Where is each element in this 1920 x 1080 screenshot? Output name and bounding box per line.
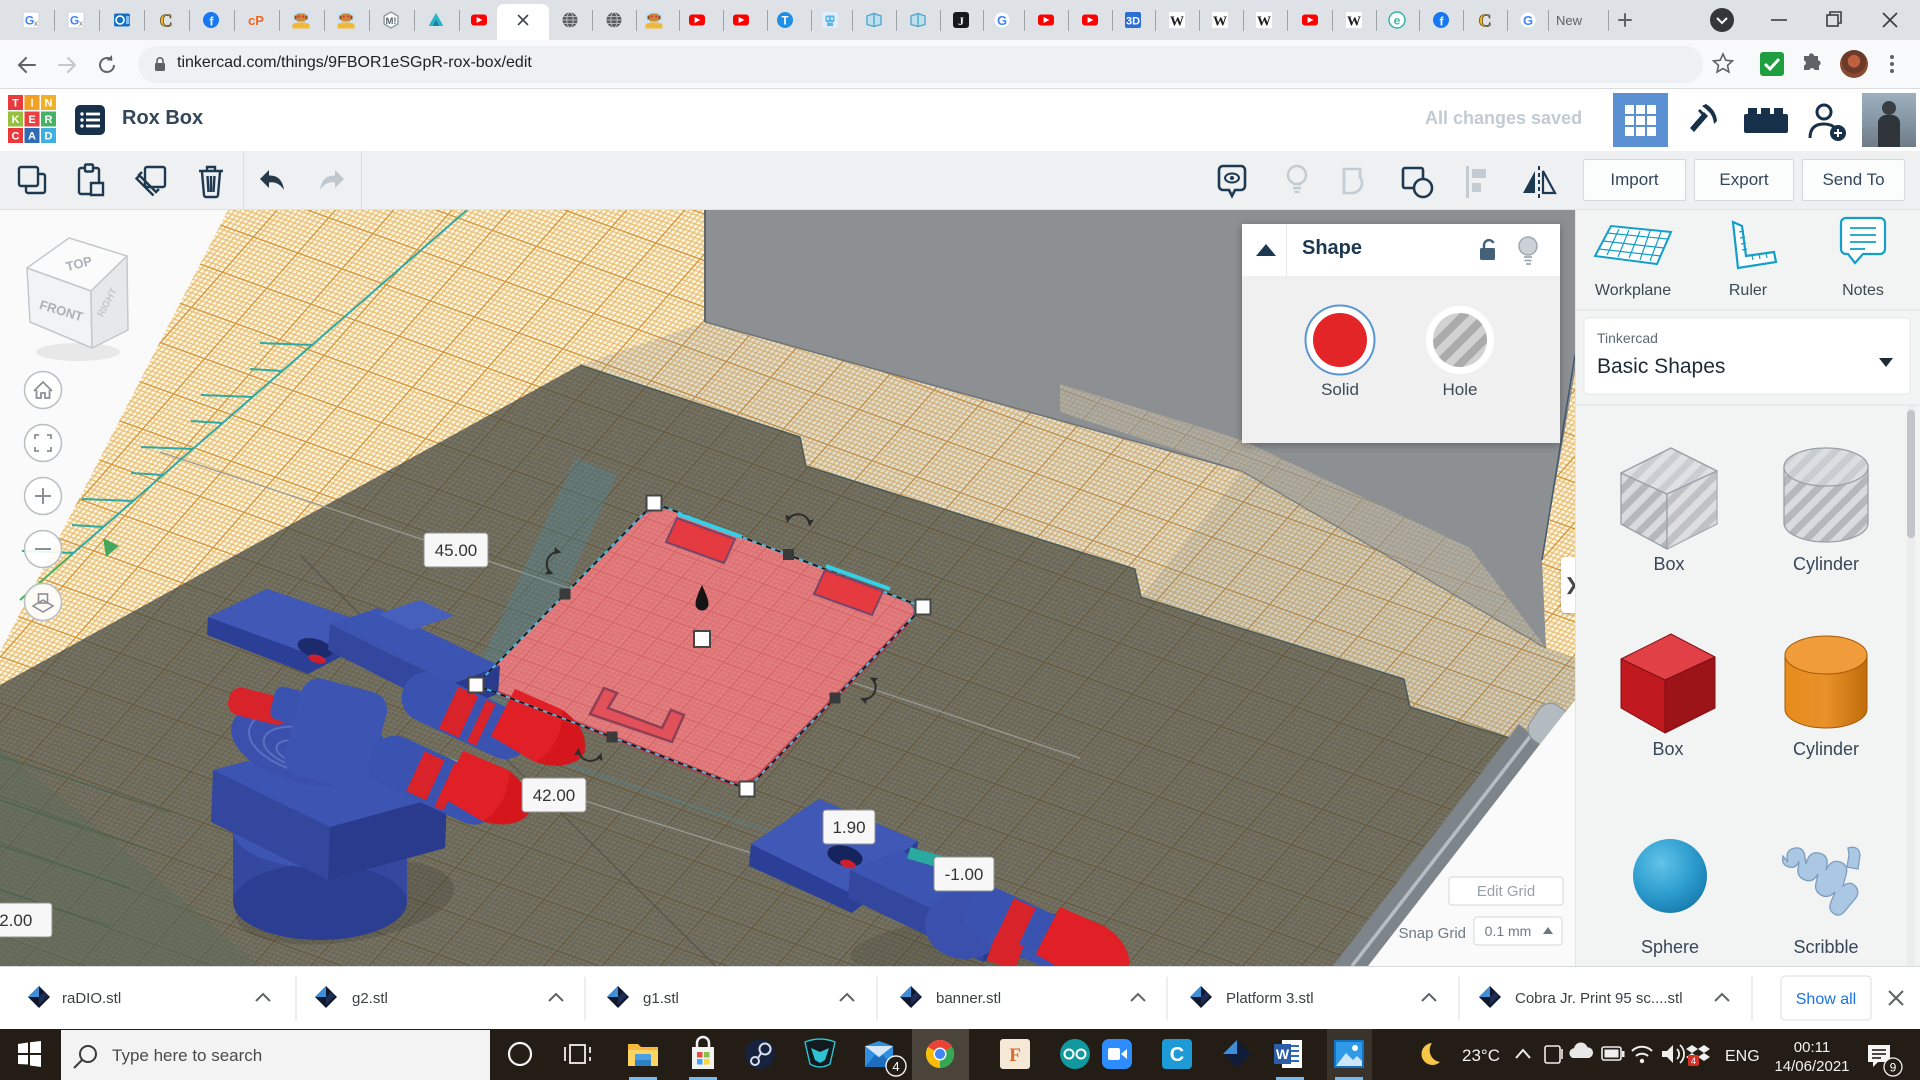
svg-text:0.1 mm: 0.1 mm	[1485, 923, 1532, 939]
svg-text:1.90: 1.90	[832, 818, 865, 837]
svg-text:42.00: 42.00	[533, 786, 576, 805]
svg-text:Box: Box	[1653, 554, 1684, 574]
svg-text:M!: M!	[385, 16, 396, 27]
svg-text:Scribble: Scribble	[1793, 937, 1858, 957]
svg-text:I: I	[30, 98, 33, 110]
svg-text:Snap Grid: Snap Grid	[1398, 925, 1466, 942]
svg-text:R: R	[45, 114, 53, 126]
svg-text:45.00: 45.00	[435, 541, 478, 560]
svg-text:ENG: ENG	[1725, 1048, 1760, 1065]
svg-text:W: W	[1276, 1046, 1290, 1062]
svg-text:Cobra Jr. Print 95 sc....stl: Cobra Jr. Print 95 sc....stl	[1515, 990, 1683, 1007]
svg-text:raDIO.stl: raDIO.stl	[62, 990, 121, 1007]
svg-text:New: New	[1556, 13, 1583, 28]
svg-text:Basic Shapes: Basic Shapes	[1597, 355, 1725, 378]
svg-text:52.00: 52.00	[0, 911, 32, 930]
svg-text:e: e	[1394, 14, 1401, 28]
svg-text:A: A	[28, 131, 36, 143]
svg-text:4: 4	[892, 1059, 899, 1074]
svg-text:Ruler: Ruler	[1729, 282, 1768, 299]
svg-text:E: E	[28, 114, 35, 126]
svg-text:4: 4	[1691, 1056, 1696, 1066]
svg-text:Workplane: Workplane	[1595, 282, 1671, 299]
svg-text:T: T	[781, 16, 788, 28]
svg-text:Notes: Notes	[1842, 282, 1884, 299]
svg-text:Cylinder: Cylinder	[1793, 554, 1859, 574]
svg-text:Type here to search: Type here to search	[112, 1046, 262, 1065]
svg-text:g2.stl: g2.stl	[352, 990, 388, 1007]
svg-text:cP: cP	[248, 13, 264, 28]
svg-text:23°C: 23°C	[1462, 1046, 1500, 1065]
svg-text:00:11: 00:11	[1794, 1039, 1830, 1056]
svg-text:-1.00: -1.00	[945, 865, 984, 884]
svg-text:14/06/2021: 14/06/2021	[1774, 1058, 1849, 1075]
svg-text:J: J	[958, 14, 964, 28]
svg-text:Edit Grid: Edit Grid	[1477, 883, 1535, 900]
svg-text:Cylinder: Cylinder	[1793, 739, 1859, 759]
svg-text:C: C	[1170, 1044, 1184, 1066]
svg-text:Platform 3.stl: Platform 3.stl	[1226, 990, 1314, 1007]
svg-text:D: D	[45, 131, 53, 143]
svg-text:Sphere: Sphere	[1641, 937, 1699, 957]
svg-text:Box: Box	[1652, 739, 1683, 759]
svg-text:F: F	[1009, 1045, 1021, 1066]
svg-text:C: C	[12, 131, 20, 143]
svg-text:9: 9	[1890, 1061, 1897, 1075]
svg-text:g1.stl: g1.stl	[643, 990, 679, 1007]
svg-text:Tinkercad: Tinkercad	[1597, 330, 1658, 346]
svg-text:T: T	[12, 98, 19, 110]
svg-text:3D: 3D	[1126, 16, 1140, 28]
svg-text:Show all: Show all	[1796, 991, 1856, 1008]
svg-text:K: K	[12, 114, 20, 126]
svg-text:N: N	[45, 98, 53, 110]
svg-text:banner.stl: banner.stl	[936, 990, 1001, 1007]
